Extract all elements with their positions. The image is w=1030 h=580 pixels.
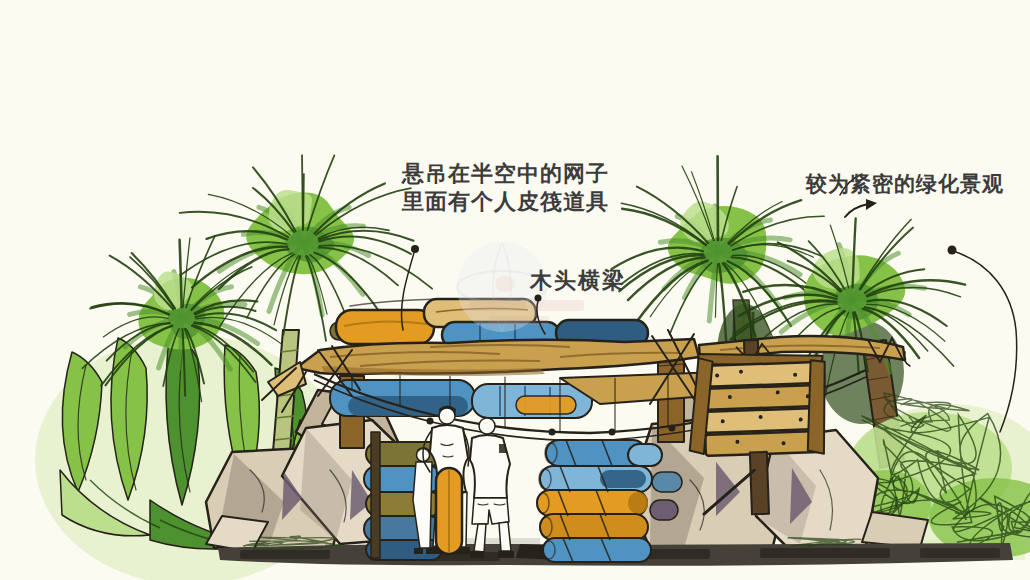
figure-person	[470, 418, 514, 558]
annotation-wood-beam-label: 木头横梁	[530, 266, 626, 296]
concept-sketch-canvas: 悬吊在半空中的网子 里面有个人皮筏道具 较为紧密的绿化景观 木头横梁	[0, 0, 1030, 580]
annotation-hanging-net-line1: 悬吊在半空中的网子	[402, 160, 609, 188]
leader-dot-net	[411, 245, 419, 253]
paddle-board	[436, 468, 462, 554]
leader-arrow-landscape	[845, 204, 868, 217]
annotation-landscape: 较为紧密的绿化景观	[806, 170, 1004, 198]
annotation-wood-beam: 木头横梁	[530, 266, 626, 296]
annotation-hanging-net: 悬吊在半空中的网子 里面有个人皮筏道具	[402, 160, 609, 216]
annotation-landscape-label: 较为紧密的绿化景观	[806, 170, 1004, 198]
leader-dot-landscape	[948, 246, 957, 255]
sketch-drawing	[0, 0, 1030, 580]
bamboo-pole	[371, 432, 380, 558]
annotation-hanging-net-line2: 里面有个人皮筏道具	[402, 188, 609, 216]
